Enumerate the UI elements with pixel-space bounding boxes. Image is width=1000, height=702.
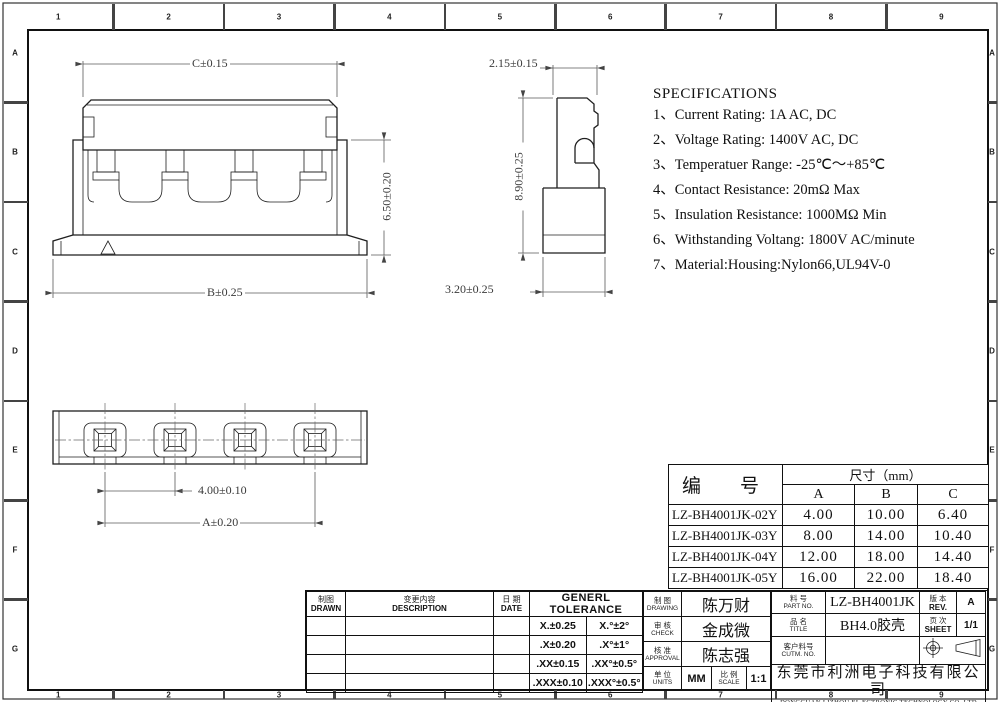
tolerance-cell: .XX°±0.5° xyxy=(586,655,643,674)
spec-item: 4、Contact Resistance: 20mΩ Max xyxy=(653,178,993,203)
zone-tick xyxy=(223,690,226,699)
projection-symbol xyxy=(920,637,986,665)
zone-label: 6 xyxy=(608,13,612,22)
approval-label: 核 准 APPROVAL xyxy=(644,642,682,667)
first-angle-projection-icon xyxy=(920,637,986,659)
signature-table: 制 图 DRAWING 陈万财 审 核 CHECK 金成微 核 准 APPROV… xyxy=(643,591,771,691)
cell-part: LZ-BH4001JK-03Y xyxy=(669,526,783,547)
part-no-value: LZ-BH4001JK xyxy=(826,592,920,614)
zone-label: A xyxy=(12,48,18,57)
scale-value: 1:1 xyxy=(747,667,770,690)
zone-label: F xyxy=(990,545,995,554)
zone-label: 1 xyxy=(56,13,60,22)
zone-tick xyxy=(4,101,28,104)
check-label: 审 核 CHECK xyxy=(644,617,682,642)
cell-a: 12.00 xyxy=(783,547,855,568)
zone-tick xyxy=(775,4,778,30)
side-view-drawing xyxy=(440,45,640,305)
dim-label-side-bottom: 3.20±0.25 xyxy=(443,283,496,296)
revision-tolerance-table: 制图 DRAWN 变更内容 DESCRIPTION 日 期 DATE GENER… xyxy=(306,591,643,693)
zone-tick xyxy=(112,4,115,30)
spec-item: 1、Current Rating: 1A AC, DC xyxy=(653,103,993,128)
drawing-label: 制 图 DRAWING xyxy=(644,592,682,617)
scale-label: 比 例 SCALE xyxy=(712,667,747,690)
zone-tick xyxy=(554,4,557,30)
zone-label: 5 xyxy=(498,13,502,22)
cell-part: LZ-BH4001JK-02Y xyxy=(669,505,783,526)
revision-row: .XX±0.15 .XX°±0.5° xyxy=(307,655,643,674)
cell-c: 6.40 xyxy=(918,505,989,526)
zone-tick xyxy=(664,4,667,30)
cell-b: 22.00 xyxy=(855,568,918,589)
cell-c: 14.40 xyxy=(918,547,989,568)
specifications-title: SPECIFICATIONS xyxy=(653,86,993,103)
dim-label-side-top: 2.15±0.15 xyxy=(487,57,540,70)
tolerance-cell: X.±0.25 xyxy=(530,617,587,636)
zone-label: 2 xyxy=(166,690,170,699)
dim-label-c: C±0.15 xyxy=(190,57,230,70)
approval-signature: 陈志强 xyxy=(682,642,771,667)
revision-row: .X±0.20 .X°±1° xyxy=(307,636,643,655)
col-a-header: A xyxy=(783,485,855,505)
drawing-signature: 陈万财 xyxy=(682,592,771,617)
cell-b: 18.00 xyxy=(855,547,918,568)
zone-tick xyxy=(4,499,28,502)
zone-label: 4 xyxy=(387,13,391,22)
cell-part: LZ-BH4001JK-05Y xyxy=(669,568,783,589)
zone-tick xyxy=(988,499,997,502)
spec-item: 7、Material:Housing:Nylon66,UL94V-0 xyxy=(653,253,993,278)
revision-row: .XXX±0.10 .XXX°±0.5° xyxy=(307,674,643,693)
spec-item: 6、Withstanding Voltang: 1800V AC/minute xyxy=(653,228,993,253)
zone-label: E xyxy=(989,446,994,455)
table-row: LZ-BH4001JK-02Y 4.00 10.00 6.40 xyxy=(669,505,989,526)
zone-label: 2 xyxy=(166,13,170,22)
size-table: 编 号 尺寸（mm） A B C LZ-BH4001JK-02Y 4.00 10… xyxy=(668,464,989,589)
zone-label: F xyxy=(13,545,18,554)
sheet-value: 1/1 xyxy=(957,614,986,637)
cell-a: 8.00 xyxy=(783,526,855,547)
zone-label: 9 xyxy=(939,13,943,22)
part-number-header: 编 号 xyxy=(669,465,783,505)
zone-tick xyxy=(988,598,997,601)
zone-label: G xyxy=(989,645,995,654)
zone-label: 1 xyxy=(56,690,60,699)
zone-tick xyxy=(333,4,336,30)
zone-tick xyxy=(4,300,28,303)
table-row: LZ-BH4001JK-04Y 12.00 18.00 14.40 xyxy=(669,547,989,568)
zone-label: 8 xyxy=(829,13,833,22)
zone-label: E xyxy=(12,446,17,455)
dim-label-span: A±0.20 xyxy=(200,516,240,529)
revision-row: X.±0.25 X.°±2° xyxy=(307,617,643,636)
zone-label: 7 xyxy=(718,690,722,699)
zone-label: 3 xyxy=(277,13,281,22)
zone-tick xyxy=(988,300,997,303)
part-no-label: 料 号 PART NO. xyxy=(772,592,826,614)
cell-b: 10.00 xyxy=(855,505,918,526)
table-header-row: 编 号 尺寸（mm） xyxy=(669,465,989,485)
tolerance-cell: .XX±0.15 xyxy=(530,655,587,674)
dim-label-b: B±0.25 xyxy=(205,286,245,299)
spec-item: 2、Voltage Rating: 1400V AC, DC xyxy=(653,128,993,153)
tolerance-cell: .X±0.20 xyxy=(530,636,587,655)
units-label: 单 位 UNITS xyxy=(644,667,682,691)
tolerance-header: GENERL TOLERANCE xyxy=(530,592,643,617)
tolerance-cell: .XXX°±0.5° xyxy=(586,674,643,693)
dim-label-pitch: 4.00±0.10 xyxy=(196,484,249,497)
zone-tick xyxy=(4,201,28,204)
zone-label: A xyxy=(989,48,995,57)
zone-label: D xyxy=(989,346,995,355)
drawn-header: 制图 DRAWN xyxy=(307,592,346,617)
sheet-label: 页 次 SHEET xyxy=(920,614,957,637)
part-info-table: 料 号 PART NO. LZ-BH4001JK 版 本 REV. A 品 名 … xyxy=(771,591,986,702)
zone-label: B xyxy=(12,148,18,157)
date-header: 日 期 DATE xyxy=(494,592,530,617)
zone-tick xyxy=(444,4,447,30)
spec-item: 5、Insulation Resistance: 1000MΩ Min xyxy=(653,203,993,228)
spec-item: 3、Temperatuer Range: -25℃～+85℃ xyxy=(653,153,993,178)
table-row: LZ-BH4001JK-03Y 8.00 14.00 10.40 xyxy=(669,526,989,547)
company-block: 东莞市利洲电子科技有限公司 DONGGUAN LIZHOU EL ECTRONI… xyxy=(772,665,986,702)
front-view-drawing xyxy=(40,45,410,305)
rev-value: A xyxy=(957,592,986,614)
zone-tick xyxy=(4,400,28,403)
title-label: 品 名 TITLE xyxy=(772,614,826,637)
zone-tick xyxy=(988,400,997,403)
zone-tick xyxy=(885,4,888,30)
cell-b: 14.00 xyxy=(855,526,918,547)
zone-label: 7 xyxy=(718,13,722,22)
title-block: 制图 DRAWN 变更内容 DESCRIPTION 日 期 DATE GENER… xyxy=(305,590,988,690)
customer-no-value xyxy=(826,637,920,665)
col-b-header: B xyxy=(855,485,918,505)
zone-label: 3 xyxy=(277,690,281,699)
zone-label: G xyxy=(12,645,18,654)
dim-label-height-front: 6.50±0.20 xyxy=(381,163,394,231)
cell-a: 4.00 xyxy=(783,505,855,526)
zone-tick xyxy=(664,690,667,699)
rev-label: 版 本 REV. xyxy=(920,592,957,614)
cell-part: LZ-BH4001JK-04Y xyxy=(669,547,783,568)
tolerance-cell: .XXX±0.10 xyxy=(530,674,587,693)
cell-c: 10.40 xyxy=(918,526,989,547)
zone-label: C xyxy=(12,247,18,256)
units-value: MM xyxy=(682,667,712,690)
company-name-cn: 东莞市利洲电子科技有限公司 xyxy=(772,665,985,699)
description-header: 变更内容 DESCRIPTION xyxy=(346,592,494,617)
dim-label-side-height: 8.90±0.25 xyxy=(513,143,526,211)
cell-a: 16.00 xyxy=(783,568,855,589)
table-row: LZ-BH4001JK-05Y 16.00 22.00 18.40 xyxy=(669,568,989,589)
zone-label: D xyxy=(12,346,18,355)
tolerance-cell: .X°±1° xyxy=(586,636,643,655)
zone-tick xyxy=(223,4,226,30)
zone-tick xyxy=(4,598,28,601)
zone-tick xyxy=(112,690,115,699)
specifications-block: SPECIFICATIONS 1、Current Rating: 1A AC, … xyxy=(653,86,993,278)
drawing-sheet: 123456789123456789ABCDEFGABCDEFG xyxy=(0,0,1000,702)
col-c-header: C xyxy=(918,485,989,505)
check-signature: 金成微 xyxy=(682,617,771,642)
product-title: BH4.0胶壳 xyxy=(826,614,920,637)
size-mm-header: 尺寸（mm） xyxy=(783,465,989,485)
cell-c: 18.40 xyxy=(918,568,989,589)
tolerance-cell: X.°±2° xyxy=(586,617,643,636)
customer-no-label: 客户料号 CUTM. NO. xyxy=(772,637,826,665)
